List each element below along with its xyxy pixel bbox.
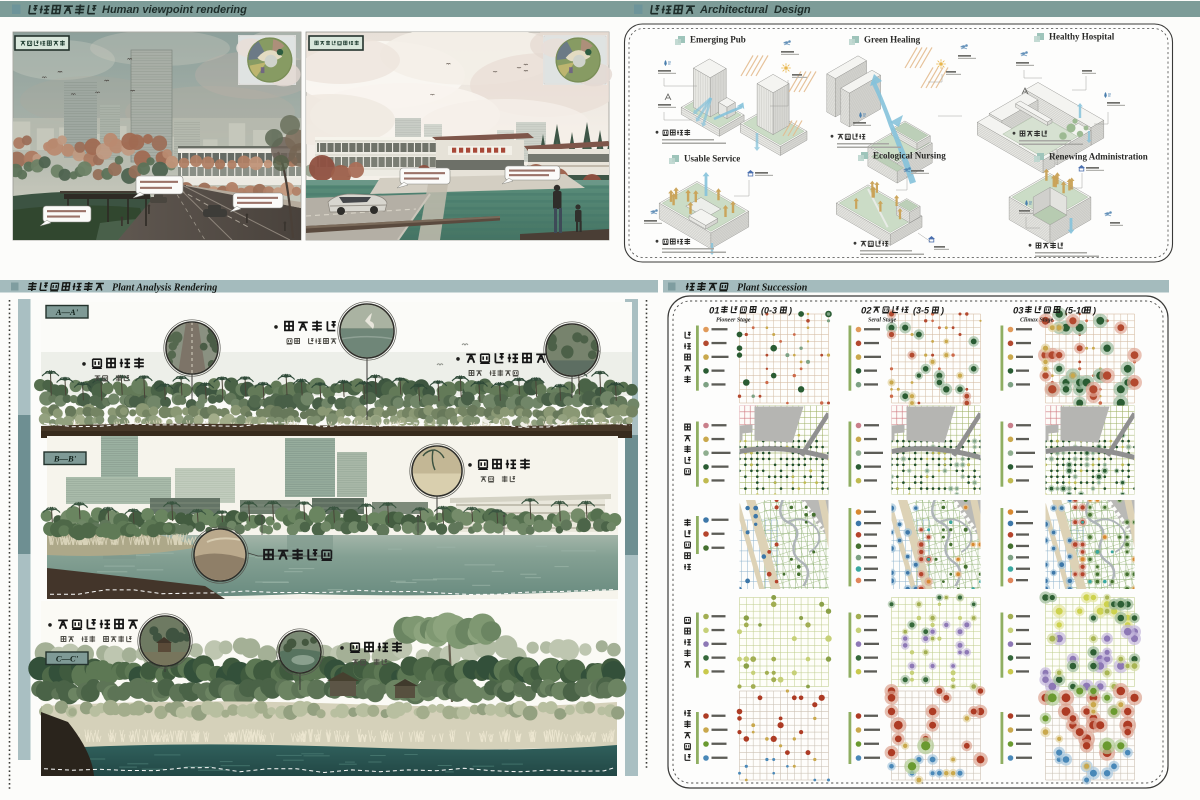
svg-text:Green Healing: Green Healing (864, 35, 921, 45)
svg-text:B—B': B—B' (53, 453, 77, 463)
svg-text:Ecological Nursing: Ecological Nursing (873, 151, 946, 161)
svg-text:(5-10: (5-10 (1065, 306, 1086, 316)
svg-text:Architectural Design: Architectural Design (699, 4, 811, 16)
svg-text:(0-3: (0-3 (761, 306, 777, 316)
svg-text:Seral Stage: Seral Stage (868, 318, 897, 324)
svg-text:A—A': A—A' (55, 307, 79, 317)
svg-text:): ) (1092, 306, 1096, 316)
svg-text:Usable Service: Usable Service (684, 154, 740, 164)
svg-text:(3-5: (3-5 (913, 306, 930, 316)
svg-text:03: 03 (1013, 306, 1024, 317)
svg-text:Plant Succession: Plant Succession (737, 283, 808, 294)
svg-text:C—C': C—C' (56, 653, 79, 663)
svg-text:Climax Stage: Climax Stage (1020, 318, 1054, 324)
svg-text:Healthy Hospital: Healthy Hospital (1049, 32, 1115, 42)
svg-text:01: 01 (709, 306, 720, 317)
svg-text:): ) (788, 306, 792, 316)
svg-text:Pioneer Stage: Pioneer Stage (716, 318, 751, 324)
svg-text:): ) (940, 306, 944, 316)
svg-text:Renewing Administration: Renewing Administration (1049, 152, 1148, 162)
svg-text:Emerging Pub: Emerging Pub (690, 35, 746, 45)
svg-text:Human viewpoint rendering: Human viewpoint rendering (102, 4, 247, 16)
svg-text:Plant Analysis Rendering: Plant Analysis Rendering (112, 283, 217, 294)
svg-text:02: 02 (861, 306, 872, 317)
